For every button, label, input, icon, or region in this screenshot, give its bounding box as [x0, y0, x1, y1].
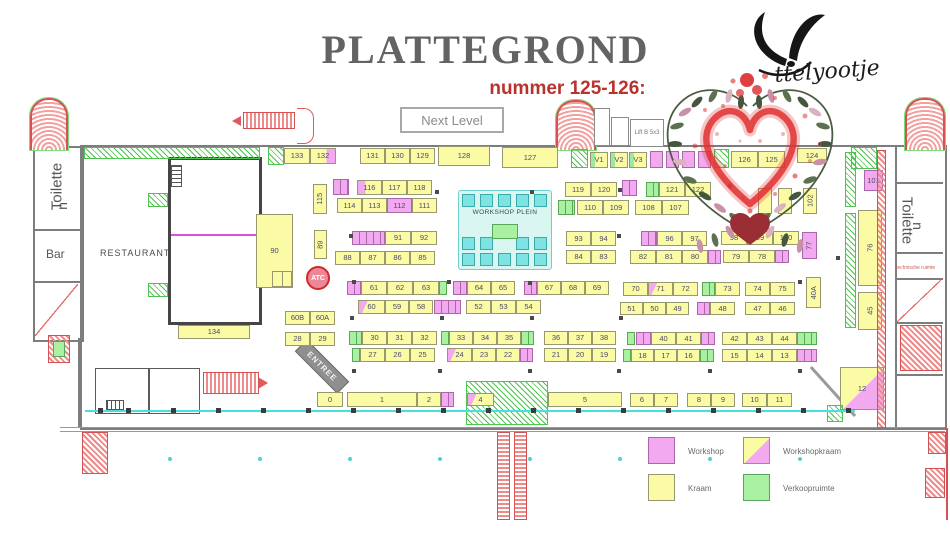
stall-5: 5 [548, 392, 622, 407]
line-marker [666, 408, 671, 413]
stall-93: 93 [566, 231, 591, 246]
line-marker [846, 408, 851, 413]
stall-127: 127 [502, 147, 558, 168]
stall-63: 63 [413, 281, 439, 295]
line-marker [711, 408, 716, 413]
staircase-top-right [905, 98, 945, 150]
escalator-curve [297, 108, 314, 144]
plan-block [352, 348, 360, 362]
stall-22: 22 [496, 348, 520, 362]
stall-31: 31 [387, 331, 412, 345]
atc-badge: ATC [306, 266, 330, 290]
restaurant-stage-block [168, 157, 262, 325]
stall-58: 58 [409, 300, 433, 314]
stall-10: 10 [742, 393, 767, 407]
plan-block [700, 349, 714, 362]
plan-block [571, 149, 588, 168]
stall-88: 88 [335, 251, 360, 265]
right-store-room [897, 280, 941, 322]
pillar [594, 108, 610, 146]
stall-47: 47 [745, 302, 770, 315]
plein-table [534, 194, 547, 207]
stall-35: 35 [497, 331, 521, 345]
pillar-dot [798, 280, 802, 284]
stall-2: 2 [417, 392, 441, 407]
pillar-dot [352, 369, 356, 373]
stall-113: 113 [362, 198, 387, 213]
plan-block [439, 281, 447, 295]
stall-38: 38 [592, 331, 616, 345]
stall-91: 91 [385, 231, 411, 245]
stall-117: 117 [382, 180, 407, 195]
legend-label: Workshop [688, 447, 724, 456]
stall-1: 1 [347, 392, 417, 407]
stall-59: 59 [385, 300, 409, 314]
pillar-dot [528, 369, 532, 373]
stall-83: 83 [591, 250, 616, 264]
stall-41: 41 [676, 332, 701, 345]
stall-129: 129 [410, 148, 435, 164]
corridor-dot [258, 457, 262, 461]
stall-60B: 60B [285, 311, 310, 325]
stall-20: 20 [568, 348, 592, 362]
wall-line [895, 182, 943, 184]
pillar-dot [352, 280, 356, 284]
plan-block [928, 432, 946, 454]
line-marker [396, 408, 401, 413]
stall-V1: V1 [590, 152, 608, 168]
line-marker [576, 408, 581, 413]
plein-table [498, 253, 511, 266]
heart-wreath-art [635, 58, 865, 258]
plan-block [333, 179, 349, 195]
toilette-left-n: n [54, 202, 70, 210]
restaurant-label: RESTAURANT [100, 248, 170, 258]
stall-53: 53 [491, 300, 516, 314]
plan-block [623, 349, 631, 362]
technische-ruimte-label: technische ruimte [896, 265, 935, 271]
legend-label: Workshopkraam [783, 447, 841, 456]
stall-27: 27 [360, 348, 385, 362]
stall-65: 65 [491, 281, 515, 295]
stall-112: 112 [387, 198, 412, 213]
plan-block [349, 331, 362, 345]
stall-94: 94 [591, 231, 616, 246]
next-level-sign: Next Level [400, 107, 504, 133]
stall-16: 16 [677, 349, 700, 362]
page-title: PLATTEGROND [318, 26, 653, 73]
line-marker [621, 408, 626, 413]
stall-130: 130 [385, 148, 410, 164]
workshop-plein-label: WORKSHOP PLEIN [468, 209, 542, 216]
plan-block [558, 200, 575, 215]
line-marker [486, 408, 491, 413]
plan-block [243, 112, 295, 129]
line-marker [801, 408, 806, 413]
stall-29: 29 [310, 332, 335, 346]
left-store-room [35, 284, 78, 336]
plan-block [268, 147, 284, 165]
stall-34: 34 [473, 331, 497, 345]
stall-15: 15 [722, 349, 747, 362]
stall-119: 119 [565, 182, 591, 197]
toilette-left-label: Toilette [49, 152, 66, 222]
pillar-dot [530, 316, 534, 320]
stall-18: 18 [631, 349, 654, 362]
plan-block [148, 283, 168, 297]
plan-block [701, 332, 715, 345]
stall-72: 72 [673, 282, 698, 296]
stall-62: 62 [387, 281, 413, 295]
corridor-dot [168, 457, 172, 461]
stall-89: 89 [314, 230, 327, 259]
corridor-dot [348, 457, 352, 461]
ladder-icon [171, 165, 182, 187]
stall-48: 48 [710, 302, 735, 315]
line-marker [98, 408, 103, 413]
line-marker [261, 408, 266, 413]
plan-block [797, 349, 817, 362]
pillar-dot [447, 280, 451, 284]
pillar-dot [618, 188, 622, 192]
plan-block [148, 193, 168, 207]
pillar-dot [708, 369, 712, 373]
stall-109: 109 [603, 200, 629, 215]
line-marker [171, 408, 176, 413]
corridor-dot [528, 457, 532, 461]
line-marker [531, 408, 536, 413]
stall-115: 115 [313, 184, 327, 214]
wall-line [33, 229, 80, 231]
stall-30: 30 [362, 331, 387, 345]
plan-block [53, 341, 65, 357]
corridor-dot [618, 457, 622, 461]
stall-68: 68 [561, 281, 585, 295]
stall-69: 69 [585, 281, 609, 295]
stall-87: 87 [360, 251, 385, 265]
stall-52: 52 [466, 300, 491, 314]
pillar-dot [530, 190, 534, 194]
plan-block [827, 405, 843, 422]
stall-120: 120 [591, 182, 617, 197]
stall-7: 7 [654, 393, 678, 407]
stall-60A: 60A [310, 311, 335, 325]
stall-74: 74 [745, 282, 770, 296]
plein-table [516, 194, 529, 207]
wall-line [946, 428, 948, 520]
plan-block [434, 300, 461, 314]
plan-block [514, 432, 527, 520]
stall-4: 4 [467, 393, 494, 406]
stall-32: 32 [412, 331, 437, 345]
plein-green-block [492, 224, 518, 239]
stall-134: 134 [178, 325, 250, 339]
legend-label: Verkoopruimte [783, 484, 835, 493]
stall-49: 49 [666, 302, 689, 315]
plein-table [534, 253, 547, 266]
stall-60: 60 [358, 300, 385, 314]
plein-table [462, 237, 475, 250]
stall-132: 132 [310, 148, 336, 164]
escalator-arrow-right-icon [258, 377, 268, 389]
ladder-icon [106, 400, 124, 410]
stall-43: 43 [747, 332, 772, 345]
wall-line [33, 281, 80, 283]
stall-0: 0 [317, 392, 343, 407]
plan-block [900, 325, 942, 371]
pillar-dot [440, 316, 444, 320]
corridor-dot [438, 457, 442, 461]
stall-11: 11 [767, 393, 792, 407]
line-marker [441, 408, 446, 413]
stall-50: 50 [643, 302, 666, 315]
escalator-arrow-left-icon [232, 116, 241, 126]
stall-118: 118 [407, 180, 432, 195]
stall-128: 128 [438, 146, 490, 166]
stall-114: 114 [337, 198, 362, 213]
corridor-dot [798, 457, 802, 461]
pillar-dot [435, 190, 439, 194]
plan-block [441, 331, 449, 345]
stall-40: 40 [651, 332, 676, 345]
line-marker [126, 408, 131, 413]
bar-label: Bar [46, 247, 65, 261]
stall-131: 131 [360, 148, 385, 164]
plein-table [462, 194, 475, 207]
stall-6: 6 [630, 393, 654, 407]
stall-70: 70 [623, 282, 648, 296]
plan-block [203, 372, 259, 394]
stall-75: 75 [770, 282, 795, 296]
wall-line [148, 369, 150, 413]
stall-67: 67 [537, 281, 561, 295]
legend-swatch-kraam [648, 474, 675, 501]
wall-line [895, 322, 943, 324]
stage-magenta-line [171, 234, 259, 236]
pillar [611, 117, 629, 146]
plein-table [462, 253, 475, 266]
plein-table [516, 253, 529, 266]
stall-71: 71 [648, 282, 673, 296]
stall-84: 84 [566, 250, 591, 264]
stall-116: 116 [357, 180, 382, 195]
plan-block [702, 282, 715, 296]
pillar-dot [349, 234, 353, 238]
plan-block [520, 348, 533, 362]
line-marker [351, 408, 356, 413]
pillar-dot [619, 316, 623, 320]
stall-73: 73 [715, 282, 740, 296]
plan-block [82, 432, 108, 474]
stall-46: 46 [770, 302, 795, 315]
stall-44: 44 [772, 332, 797, 345]
floor-plan-page: PLATTEGROND nummer 125-126: ttelyootje N… [0, 0, 950, 542]
stall-8: 8 [687, 393, 711, 407]
plein-table [534, 237, 547, 250]
plan-block [453, 281, 467, 295]
pillar-dot [617, 369, 621, 373]
stall-85: 85 [410, 251, 435, 265]
stall-26: 26 [385, 348, 410, 362]
line-marker [216, 408, 221, 413]
plan-block [797, 332, 817, 345]
stall-25: 25 [410, 348, 435, 362]
stall-9: 9 [711, 393, 735, 407]
pillar-dot [528, 281, 532, 285]
legend-label: Kraam [688, 484, 712, 493]
wall-line [895, 374, 943, 376]
plan-block [877, 150, 886, 428]
staircase-top-left [30, 98, 68, 150]
stall-111: 111 [412, 198, 437, 213]
plan-block [441, 392, 454, 407]
stall-40A: 40A [806, 277, 821, 308]
stall-64: 64 [467, 281, 491, 295]
stall-61: 61 [361, 281, 387, 295]
small-heart-icon [730, 213, 770, 245]
toilette-right-label: Toilette [899, 186, 916, 256]
plan-block [521, 331, 534, 345]
stall-33: 33 [449, 331, 473, 345]
plan-block [84, 147, 260, 159]
corridor-dot [708, 457, 712, 461]
line-marker [756, 408, 761, 413]
stall-36: 36 [544, 331, 568, 345]
plan-block [697, 302, 710, 315]
stall-133: 133 [284, 148, 310, 164]
pillar-dot [617, 234, 621, 238]
stall-110: 110 [577, 200, 603, 215]
stall-13: 13 [772, 349, 797, 362]
stall-19: 19 [592, 348, 616, 362]
toilette-right-n: n [910, 222, 926, 230]
line-marker [306, 408, 311, 413]
plan-block [272, 271, 292, 287]
plan-block [352, 231, 385, 245]
staircase-top-middle [556, 100, 596, 150]
stall-86: 86 [385, 251, 410, 265]
legend-swatch-workshopkraam [743, 437, 770, 464]
wall-line [78, 338, 80, 428]
pillar-dot [350, 316, 354, 320]
stall-37: 37 [568, 331, 592, 345]
plein-table [480, 194, 493, 207]
plan-block [925, 468, 945, 498]
plan-block [627, 332, 635, 345]
stall-17: 17 [654, 349, 677, 362]
plan-block [497, 432, 510, 520]
stall-23: 23 [472, 348, 496, 362]
stall-24: 24 [447, 348, 472, 362]
plein-table [480, 253, 493, 266]
stall-54: 54 [516, 300, 541, 314]
plan-block [636, 332, 651, 345]
legend-swatch-workshop [648, 437, 675, 464]
stall-21: 21 [544, 348, 568, 362]
stall-42: 42 [722, 332, 747, 345]
stall-92: 92 [411, 231, 437, 245]
pillar-dot [798, 369, 802, 373]
plein-table [498, 194, 511, 207]
stall-14: 14 [747, 349, 772, 362]
pillar-dot [438, 369, 442, 373]
stall-51: 51 [620, 302, 643, 315]
stall-28: 28 [285, 332, 310, 346]
cyan-guide-line [85, 410, 855, 412]
stall-V2: V2 [610, 152, 628, 168]
legend-swatch-verkoopruimte [743, 474, 770, 501]
